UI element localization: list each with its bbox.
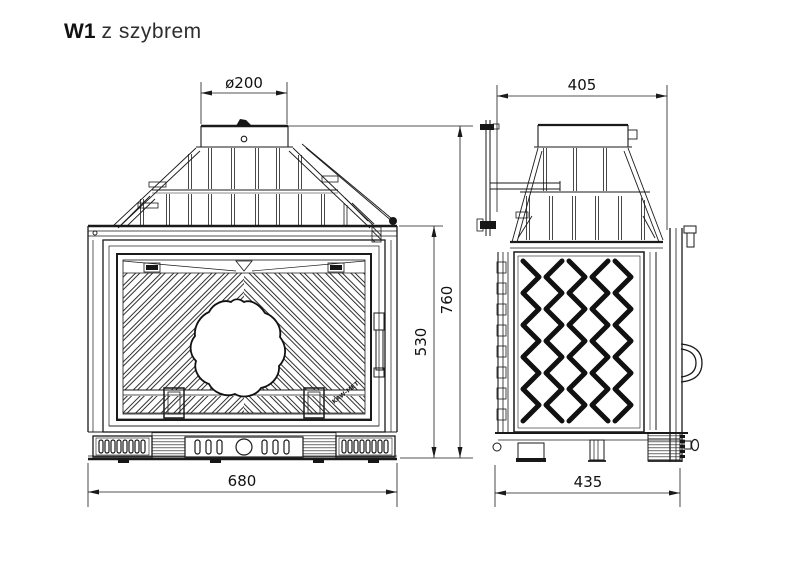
side-hood	[512, 148, 663, 242]
door-handle	[681, 344, 702, 382]
side-rear-wall	[497, 252, 508, 433]
side-knob	[692, 440, 699, 451]
front-view: KAW-MET	[88, 119, 397, 463]
hood-upper-ribs	[189, 148, 302, 189]
front-top-plate	[88, 226, 397, 236]
vent-grille-right	[336, 436, 395, 457]
dim-label-top-depth: 405	[568, 76, 597, 94]
air-control-panel	[185, 437, 303, 457]
drawing-canvas: W1z szybrem	[0, 0, 800, 567]
dim-label-width: 680	[228, 472, 257, 490]
technical-drawing: KAW-MET	[0, 0, 800, 567]
front-base	[88, 432, 397, 463]
side-top-plate	[510, 242, 663, 248]
damper-knob-front	[389, 217, 397, 225]
side-base	[493, 433, 699, 462]
dim-label-base-depth: 435	[574, 473, 603, 491]
dim-base-depth: 435	[495, 465, 680, 507]
dim-label-total-height: 760	[438, 286, 456, 315]
dim-firebox-height: 530	[399, 226, 443, 458]
chevron-fins	[523, 261, 631, 421]
collar-weld-mark	[236, 119, 252, 126]
vent-grille-left	[93, 436, 152, 457]
air-control-knob	[236, 439, 252, 455]
side-view	[477, 120, 702, 462]
side-flue-collar	[534, 125, 637, 147]
dim-label-flue: ø200	[225, 74, 263, 92]
front-flue-collar	[196, 119, 293, 147]
dim-label-firebox-height: 530	[412, 328, 430, 357]
hood-lower-ribs	[141, 194, 348, 225]
dim-overall-width: 680	[88, 463, 397, 507]
front-glass: KAW-MET	[109, 261, 379, 426]
side-chevron-panel	[514, 252, 644, 432]
side-door-edge	[650, 226, 702, 462]
dim-flue-diameter: ø200	[201, 74, 287, 124]
